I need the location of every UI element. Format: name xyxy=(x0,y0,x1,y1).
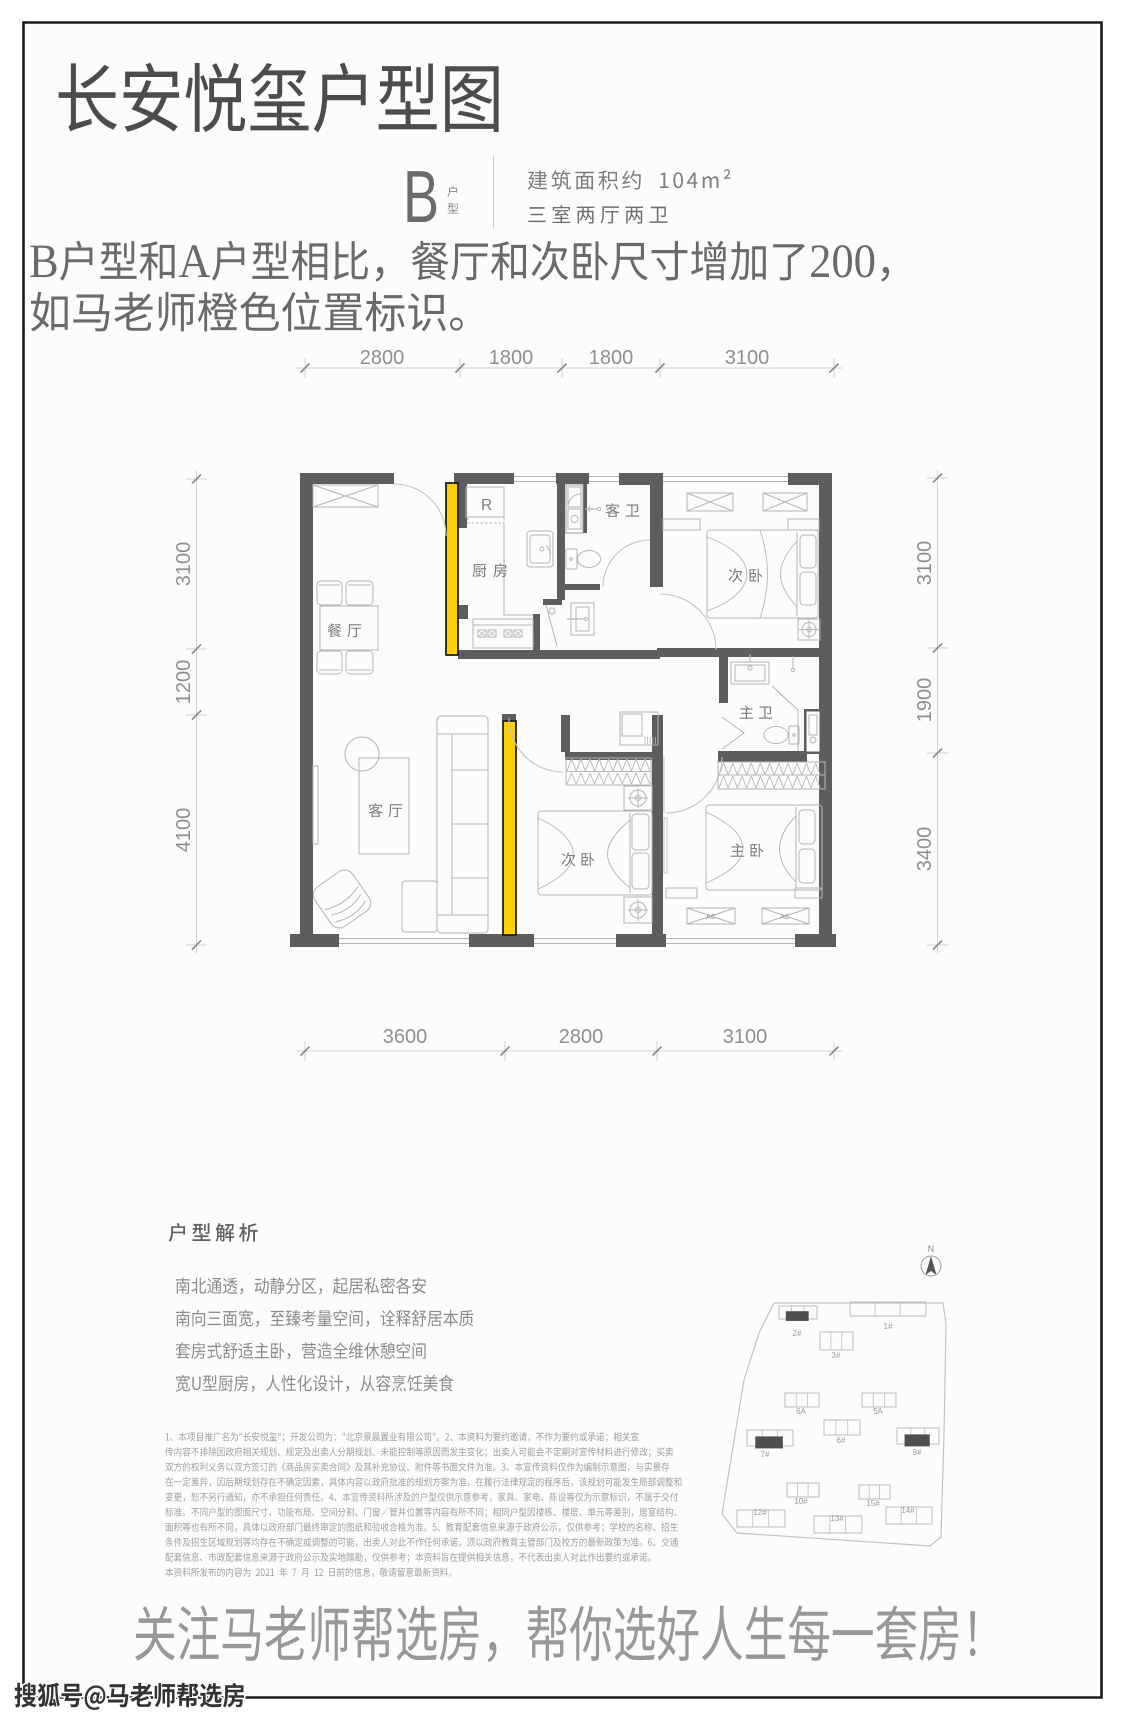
svg-text:2800: 2800 xyxy=(559,1026,604,1048)
svg-text:15#: 15# xyxy=(866,1499,880,1508)
svg-text:1200: 1200 xyxy=(173,660,195,705)
svg-text:2#: 2# xyxy=(793,1329,802,1338)
svg-text:N: N xyxy=(928,1244,935,1254)
svg-text:6#: 6# xyxy=(837,1436,846,1445)
svg-text:AC: AC xyxy=(780,914,790,921)
svg-text:10#: 10# xyxy=(794,1497,808,1506)
svg-text:4100: 4100 xyxy=(173,808,195,853)
svg-text:3600: 3600 xyxy=(383,1026,428,1048)
svg-text:1800: 1800 xyxy=(589,347,634,369)
svg-text:3400: 3400 xyxy=(914,827,936,872)
svg-text:12#: 12# xyxy=(753,1508,767,1517)
svg-text:13#: 13# xyxy=(830,1514,844,1523)
svg-text:3100: 3100 xyxy=(914,541,936,586)
svg-text:1900: 1900 xyxy=(914,678,936,723)
svg-text:14#: 14# xyxy=(901,1506,915,1515)
svg-text:9#: 9# xyxy=(913,1448,922,1457)
svg-text:5A: 5A xyxy=(873,1407,883,1416)
svg-text:AC: AC xyxy=(706,914,716,921)
svg-text:R: R xyxy=(481,497,492,514)
svg-text:1#: 1# xyxy=(884,1322,893,1331)
svg-text:3100: 3100 xyxy=(723,1026,768,1048)
svg-text:7#: 7# xyxy=(761,1450,770,1459)
svg-text:1800: 1800 xyxy=(489,347,534,369)
svg-text:3100: 3100 xyxy=(173,542,195,587)
svg-text:3100: 3100 xyxy=(725,347,770,369)
svg-text:3#: 3# xyxy=(832,1351,841,1360)
svg-text:2800: 2800 xyxy=(360,347,405,369)
svg-text:6A: 6A xyxy=(796,1407,806,1416)
